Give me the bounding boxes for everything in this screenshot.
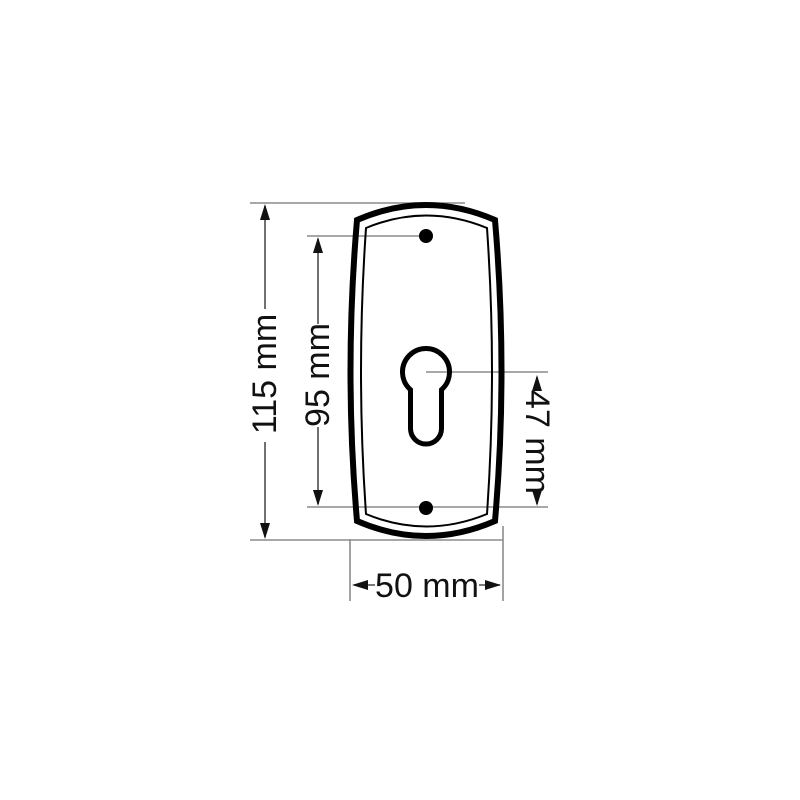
label-cylinder-offset: 47 mm: [518, 390, 556, 494]
arrowhead-47-top: [532, 375, 542, 391]
arrowhead-115-top: [260, 204, 270, 220]
arrowhead-115-bottom: [260, 523, 270, 539]
label-overall-height: 115 mm: [246, 314, 284, 434]
label-hole-spacing: 95 mm: [299, 323, 337, 427]
escutcheon-plate-body: [351, 205, 502, 536]
arrowhead-50-right: [485, 580, 501, 590]
arrowhead-95-bottom: [313, 490, 323, 506]
screw-hole-top: [419, 229, 433, 243]
escutcheon-dimension-diagram: 115 mm 95 mm 47 mm 50 mm: [0, 0, 800, 800]
arrowhead-95-top: [313, 237, 323, 253]
arrowhead-50-left: [352, 580, 368, 590]
label-overall-width: 50 mm: [375, 567, 479, 605]
screw-hole-bottom: [419, 501, 433, 515]
technical-drawing-canvas: 115 mm 95 mm 47 mm 50 mm: [0, 0, 800, 800]
